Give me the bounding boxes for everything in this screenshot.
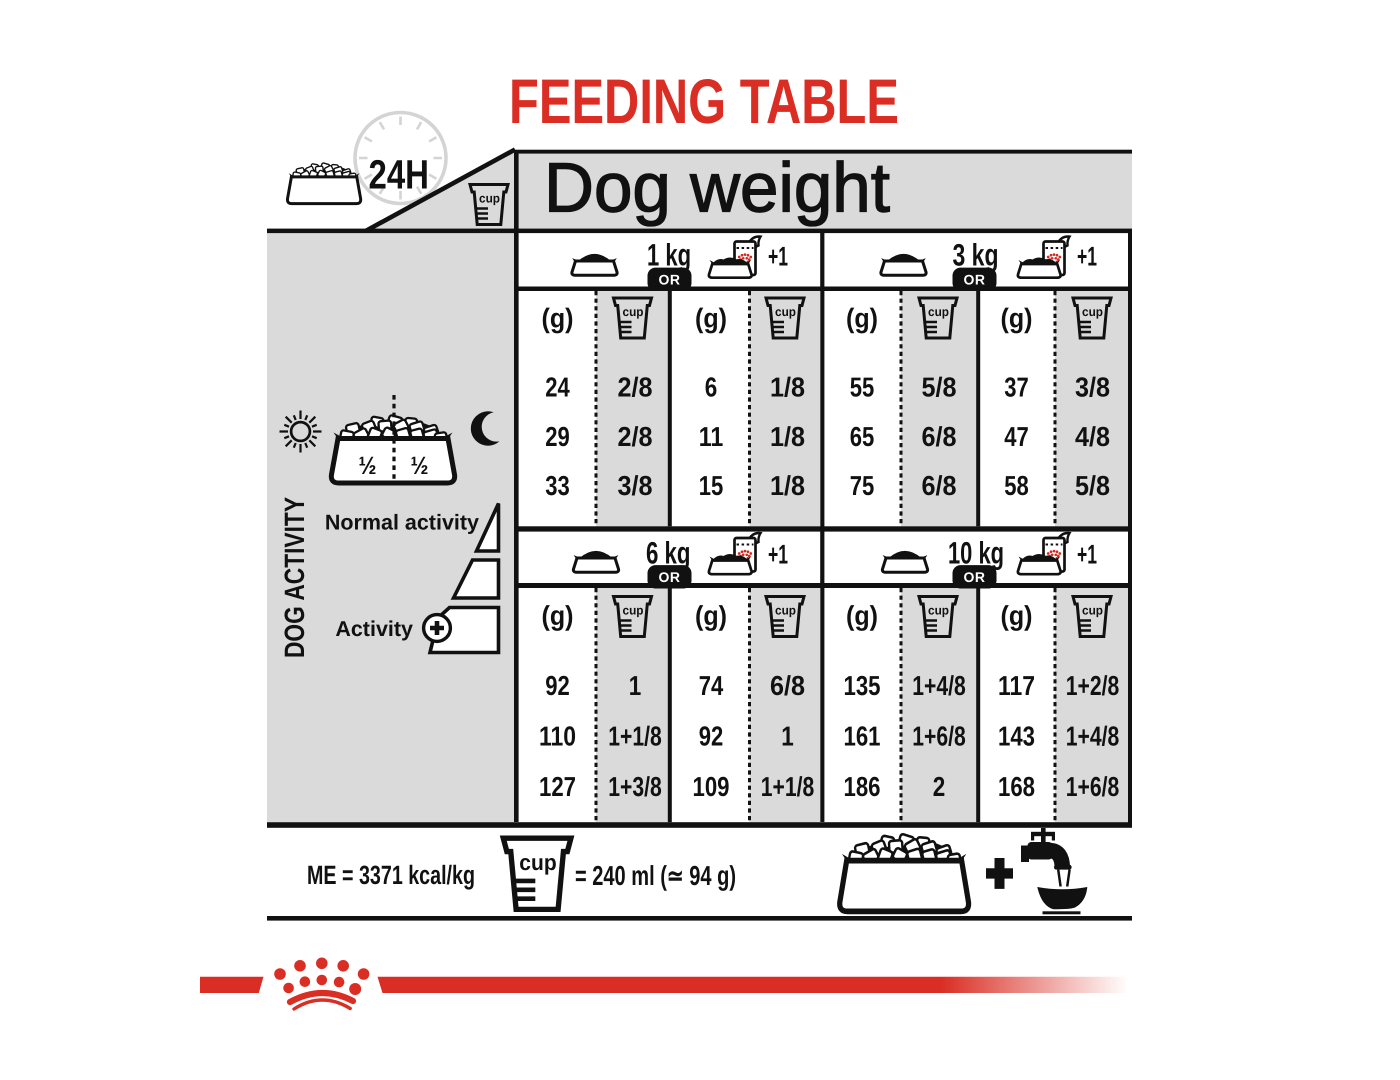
svg-text:1+1/8: 1+1/8 <box>608 721 662 752</box>
svg-text:1+4/8: 1+4/8 <box>1066 721 1120 752</box>
svg-text:5/8: 5/8 <box>1075 470 1110 501</box>
svg-text:161: 161 <box>844 721 881 752</box>
svg-text:15: 15 <box>699 470 724 501</box>
svg-text:92: 92 <box>699 721 724 752</box>
svg-text:½: ½ <box>411 452 429 480</box>
svg-text:1+1/8: 1+1/8 <box>761 771 815 802</box>
svg-text:2/8: 2/8 <box>618 421 653 452</box>
svg-text:58: 58 <box>1004 470 1029 501</box>
svg-text:65: 65 <box>850 421 875 452</box>
svg-text:1+4/8: 1+4/8 <box>912 670 966 701</box>
svg-text:(g): (g) <box>542 303 574 334</box>
svg-text:92: 92 <box>545 670 570 701</box>
svg-text:1 kg: 1 kg <box>647 238 691 273</box>
svg-text:1/8: 1/8 <box>770 470 805 501</box>
svg-text:29: 29 <box>545 421 570 452</box>
svg-text:6/8: 6/8 <box>922 421 957 452</box>
svg-text:(g): (g) <box>1001 303 1033 334</box>
svg-text:168: 168 <box>998 771 1035 802</box>
svg-text:+1: +1 <box>1077 242 1097 272</box>
svg-text:= 240 ml (≃ 94 g): = 240 ml (≃ 94 g) <box>575 860 736 891</box>
svg-text:(g): (g) <box>542 600 574 631</box>
svg-text:75: 75 <box>850 470 875 501</box>
svg-text:186: 186 <box>844 771 881 802</box>
svg-text:109: 109 <box>693 771 730 802</box>
svg-text:11: 11 <box>699 421 724 452</box>
svg-text:55: 55 <box>850 372 875 403</box>
svg-text:(g): (g) <box>846 600 878 631</box>
svg-text:2/8: 2/8 <box>618 372 653 403</box>
svg-text:Activity: Activity <box>335 617 413 641</box>
svg-text:143: 143 <box>998 721 1035 752</box>
svg-text:1+6/8: 1+6/8 <box>912 721 966 752</box>
svg-text:+1: +1 <box>1077 540 1097 570</box>
svg-text:1+2/8: 1+2/8 <box>1066 670 1120 701</box>
svg-text:ME = 3371 kcal/kg: ME = 3371 kcal/kg <box>307 860 475 890</box>
svg-text:24H: 24H <box>369 152 430 198</box>
svg-text:(g): (g) <box>846 303 878 334</box>
svg-text:(g): (g) <box>695 303 727 334</box>
svg-text:135: 135 <box>844 670 881 701</box>
svg-text:+1: +1 <box>768 242 788 272</box>
svg-text:37: 37 <box>1004 372 1029 403</box>
svg-text:+1: +1 <box>768 540 788 570</box>
svg-text:½: ½ <box>359 452 377 480</box>
svg-text:6/8: 6/8 <box>770 670 805 701</box>
svg-text:110: 110 <box>539 721 576 752</box>
svg-text:1+6/8: 1+6/8 <box>1066 771 1120 802</box>
svg-text:117: 117 <box>998 670 1035 701</box>
svg-text:4/8: 4/8 <box>1075 421 1110 452</box>
svg-text:1: 1 <box>781 721 794 752</box>
svg-text:(g): (g) <box>1001 600 1033 631</box>
svg-text:Normal activity: Normal activity <box>325 511 479 535</box>
svg-text:127: 127 <box>539 771 576 802</box>
svg-text:1/8: 1/8 <box>770 421 805 452</box>
svg-text:(g): (g) <box>695 600 727 631</box>
svg-text:1: 1 <box>629 670 642 701</box>
svg-text:6: 6 <box>705 372 718 403</box>
svg-text:33: 33 <box>545 470 570 501</box>
svg-text:3/8: 3/8 <box>1075 372 1110 403</box>
svg-text:6/8: 6/8 <box>922 470 957 501</box>
svg-text:5/8: 5/8 <box>922 372 957 403</box>
svg-text:74: 74 <box>699 670 724 701</box>
svg-text:2: 2 <box>933 771 946 802</box>
svg-text:DOG ACTIVITY: DOG ACTIVITY <box>279 497 310 658</box>
svg-text:47: 47 <box>1004 421 1029 452</box>
svg-text:1/8: 1/8 <box>770 372 805 403</box>
svg-text:FEEDING TABLE: FEEDING TABLE <box>509 67 899 137</box>
svg-text:24: 24 <box>545 372 570 403</box>
svg-text:Dog weight: Dog weight <box>544 149 890 227</box>
svg-text:3 kg: 3 kg <box>953 238 999 273</box>
svg-text:3/8: 3/8 <box>618 470 653 501</box>
svg-text:1+3/8: 1+3/8 <box>608 771 662 802</box>
